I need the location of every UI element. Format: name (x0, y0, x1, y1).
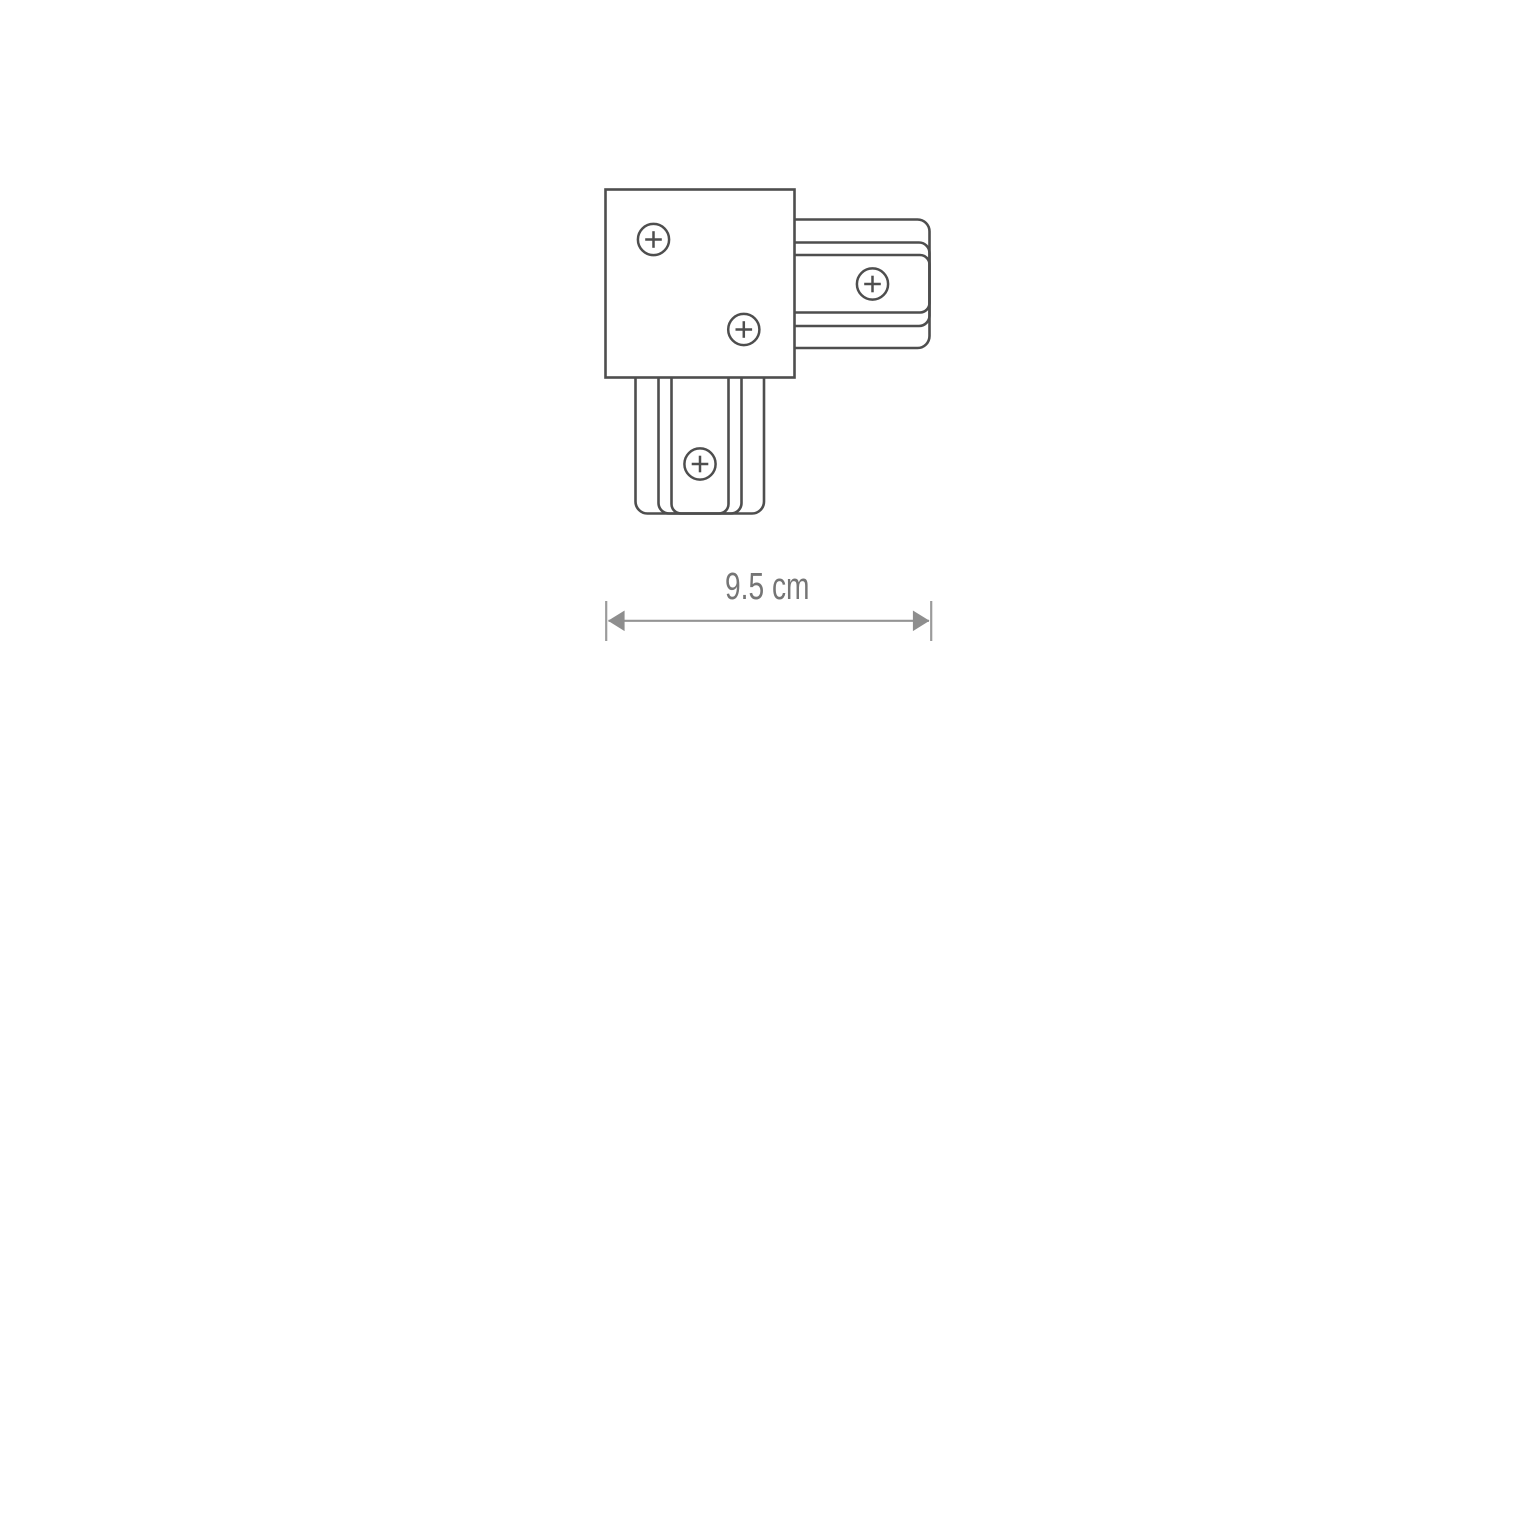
svg-text:9.5 cm: 9.5 cm (725, 566, 810, 608)
